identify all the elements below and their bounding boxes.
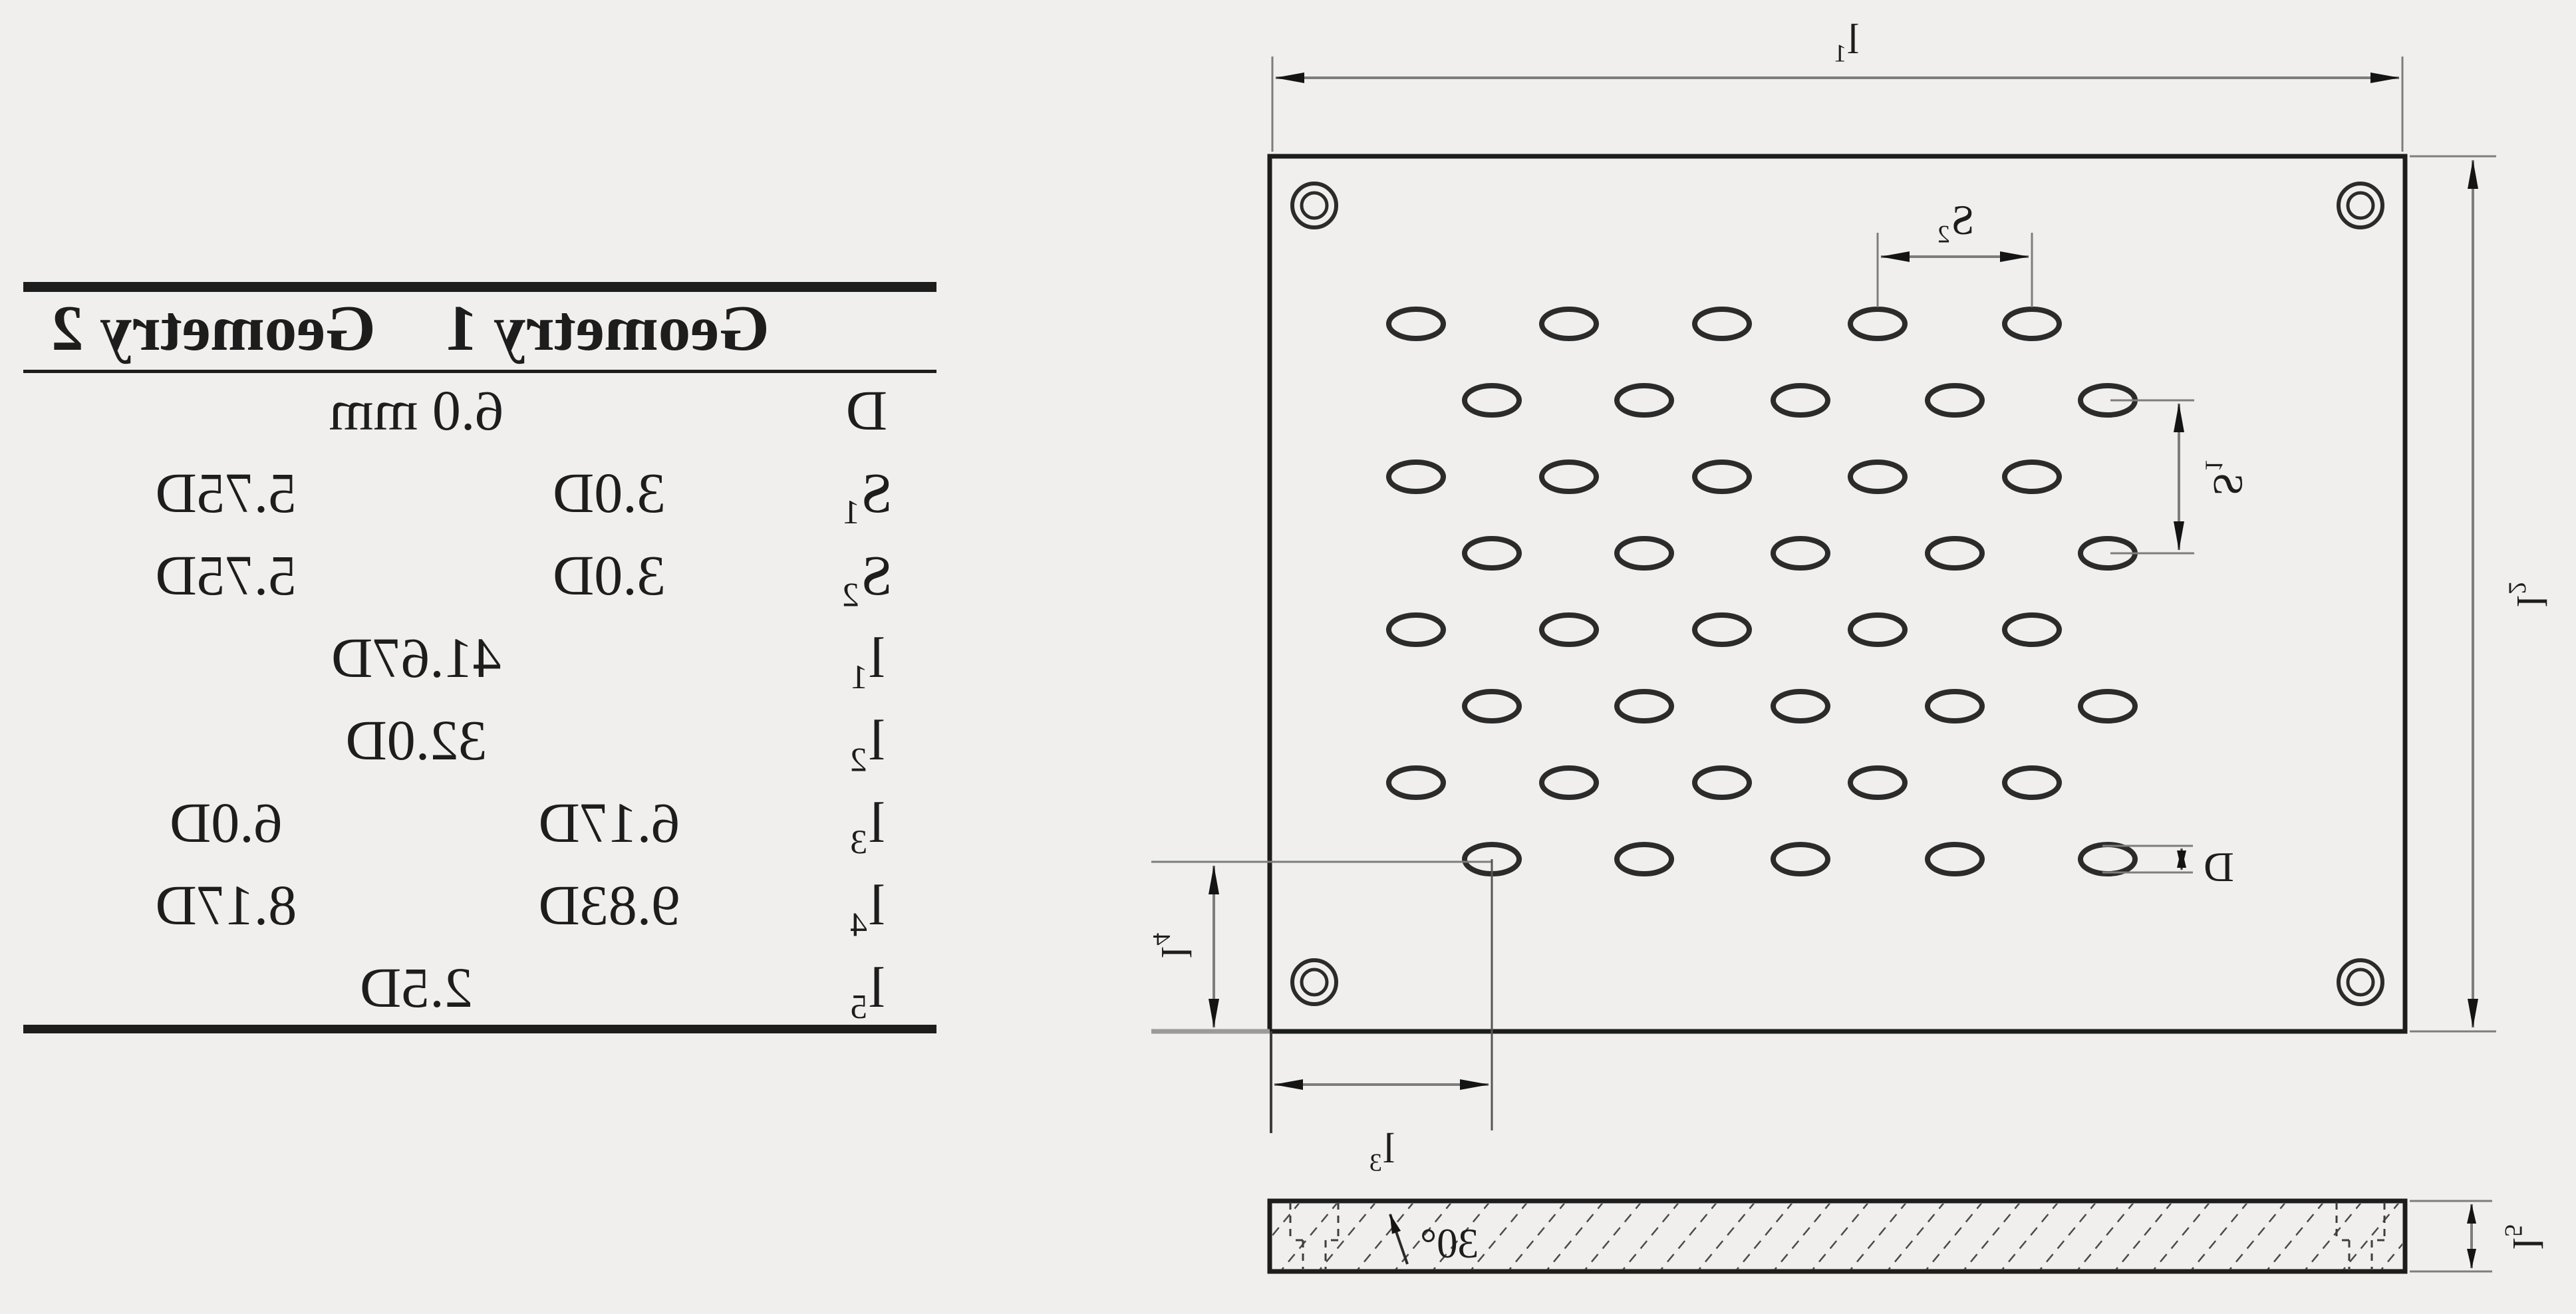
row-label: l₂ xyxy=(849,699,885,781)
plate-hole xyxy=(1542,615,1596,644)
dim-plate-height: l₂ xyxy=(2410,156,2555,1031)
plate-hole xyxy=(1389,462,1443,491)
column-header-geometry-2: Geometry 2 xyxy=(51,286,375,371)
row-label: S₂ xyxy=(841,534,893,616)
value-geometry-1: 3.0D xyxy=(553,452,666,534)
plate-hole xyxy=(1617,692,1671,721)
table-row: S₂3.0D5.75D xyxy=(23,534,936,616)
plate-hole xyxy=(2005,768,2059,797)
plate-hole xyxy=(1389,309,1443,338)
value-both-geometries: 2.5D xyxy=(360,946,473,1029)
plate-hole xyxy=(2005,462,2059,491)
dim-hole-diameter: D xyxy=(2102,844,2234,890)
plate-hole xyxy=(1928,386,1982,415)
countersunk-hole xyxy=(2337,1202,2384,1270)
plate-hole xyxy=(2080,692,2135,721)
value-geometry-1: 6.17D xyxy=(539,781,680,864)
plate-hole xyxy=(1695,309,1749,338)
plate-hole xyxy=(1389,615,1443,644)
value-both-geometries: 41.67D xyxy=(331,616,501,699)
plate-hole xyxy=(1465,386,1519,415)
plate-hole xyxy=(1850,462,1905,491)
value-both-geometries: 6.0 mm xyxy=(329,369,504,452)
table-row: l₃6.17D6.0D xyxy=(23,781,936,864)
value-geometry-2: 5.75D xyxy=(156,534,297,616)
dim-thickness: l₅ xyxy=(2410,1201,2551,1271)
plate-hole xyxy=(1695,462,1749,491)
plate-drawing: l₁ l₂ S₂ S₁ D xyxy=(1079,0,2576,1314)
plate-hole xyxy=(1542,462,1596,491)
corner-hole xyxy=(2339,960,2382,1004)
plate-outline xyxy=(1270,156,2405,1031)
corner-hole xyxy=(1292,184,1336,227)
dim-plate-width: l₁ xyxy=(1272,16,2402,152)
value-geometry-2: 6.0D xyxy=(170,781,283,864)
dim-label-s2: S₂ xyxy=(1936,197,1974,243)
plate-hole xyxy=(1542,309,1596,338)
table-row: l₂32.0D xyxy=(23,699,936,781)
row-label: S₁ xyxy=(841,452,893,534)
value-geometry-2: 5.75D xyxy=(156,452,297,534)
section-hatching xyxy=(1205,1201,2476,1271)
plate-hole xyxy=(1773,539,1828,568)
geometry-parameter-table: Geometry 1 Geometry 2 D6.0 mmS₁3.0D5.75D… xyxy=(23,0,936,1314)
plate-hole xyxy=(2080,845,2135,874)
row-label: l₃ xyxy=(849,781,885,864)
plate-hole xyxy=(1695,768,1749,797)
dim-edge-offset-vertical: l₄ xyxy=(1151,862,1492,1031)
dim-label-l2: l₂ xyxy=(2508,581,2555,606)
dim-pitch-vertical: S₁ xyxy=(2110,400,2251,553)
table-rule-bottom xyxy=(23,1025,936,1033)
column-header-geometry-1: Geometry 1 xyxy=(445,286,769,371)
table-row: l₁41.67D xyxy=(23,616,936,699)
plate-hole xyxy=(2005,309,2059,338)
plate-hole xyxy=(1928,692,1982,721)
dim-label-l3: l₃ xyxy=(1368,1125,1394,1172)
dim-label-s1: S₁ xyxy=(2205,458,2251,495)
plate-hole xyxy=(1465,692,1519,721)
table-row: D6.0 mm xyxy=(23,369,936,452)
corner-hole xyxy=(2339,184,2382,227)
dim-label-l5: l₅ xyxy=(2504,1223,2551,1249)
plate-hole xyxy=(2005,615,2059,644)
plate-hole xyxy=(1617,386,1671,415)
plate-hole xyxy=(1389,768,1443,797)
value-geometry-1: 3.0D xyxy=(553,534,666,616)
plate-hole xyxy=(1773,845,1828,874)
chamfer-angle-label: 30° xyxy=(1420,1220,1479,1267)
plate-hole xyxy=(1773,692,1828,721)
dim-label-d: D xyxy=(2204,844,2234,890)
plate-hole xyxy=(1542,768,1596,797)
table-row: l₄9.83D8.17D xyxy=(23,864,936,946)
plate-hole xyxy=(1695,615,1749,644)
dim-edge-offset-horizontal: l₃ xyxy=(1271,859,1492,1172)
plate-hole xyxy=(1850,309,1905,338)
dim-pitch-horizontal: S₂ xyxy=(1878,197,2032,307)
dim-label-l1: l₁ xyxy=(1832,16,1858,63)
plate-hole xyxy=(1928,845,1982,874)
dim-label-l4: l₄ xyxy=(1153,932,1199,958)
perforation-grid xyxy=(1389,309,2135,874)
plate-hole xyxy=(1773,386,1828,415)
row-label: l₄ xyxy=(849,864,885,946)
plate-hole xyxy=(1850,768,1905,797)
plate-hole xyxy=(1465,539,1519,568)
row-label: l₁ xyxy=(849,616,885,699)
plate-hole xyxy=(1617,539,1671,568)
plate-hole xyxy=(1850,615,1905,644)
plate-hole xyxy=(1617,845,1671,874)
table-row: S₁3.0D5.75D xyxy=(23,452,936,534)
value-geometry-2: 8.17D xyxy=(156,864,297,946)
row-label: D xyxy=(846,369,887,452)
mirrored-figure: l₁ l₂ S₂ S₁ D xyxy=(0,0,2576,1314)
chamfer-angle-callout: 30° xyxy=(1390,1214,1479,1267)
table-row: l₅2.5D xyxy=(23,946,936,1029)
row-label: l₅ xyxy=(849,946,885,1029)
value-geometry-1: 9.83D xyxy=(539,864,680,946)
countersunk-hole xyxy=(1290,1202,1338,1270)
value-both-geometries: 32.0D xyxy=(346,699,488,781)
corner-hole xyxy=(1292,960,1336,1004)
plate-hole xyxy=(1928,539,1982,568)
